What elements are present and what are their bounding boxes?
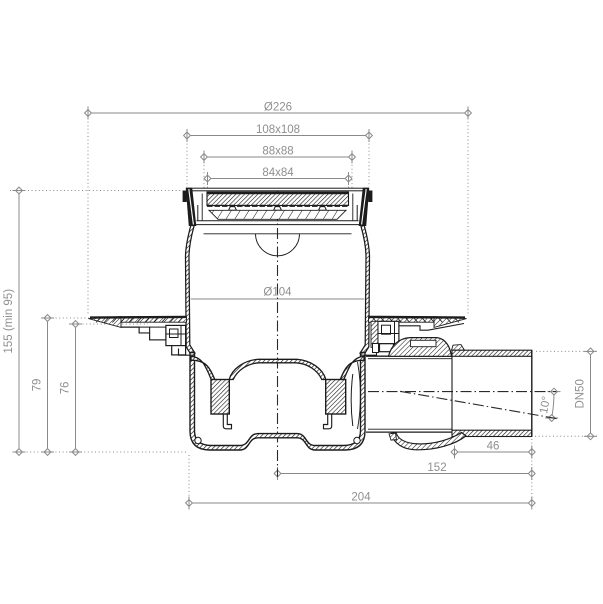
svg-text:76: 76 (60, 382, 72, 395)
svg-text:46: 46 (487, 441, 500, 453)
svg-text:155 (min 95): 155 (min 95) (3, 289, 15, 354)
svg-text:10°: 10° (538, 395, 553, 414)
svg-text:DN50: DN50 (575, 379, 587, 408)
svg-text:204: 204 (351, 492, 371, 504)
svg-text:108x108: 108x108 (256, 124, 300, 136)
svg-text:79: 79 (32, 379, 44, 392)
svg-text:Ø226: Ø226 (264, 102, 292, 114)
svg-text:88x88: 88x88 (262, 146, 293, 158)
svg-text:152: 152 (427, 462, 446, 474)
svg-text:84x84: 84x84 (262, 167, 294, 179)
